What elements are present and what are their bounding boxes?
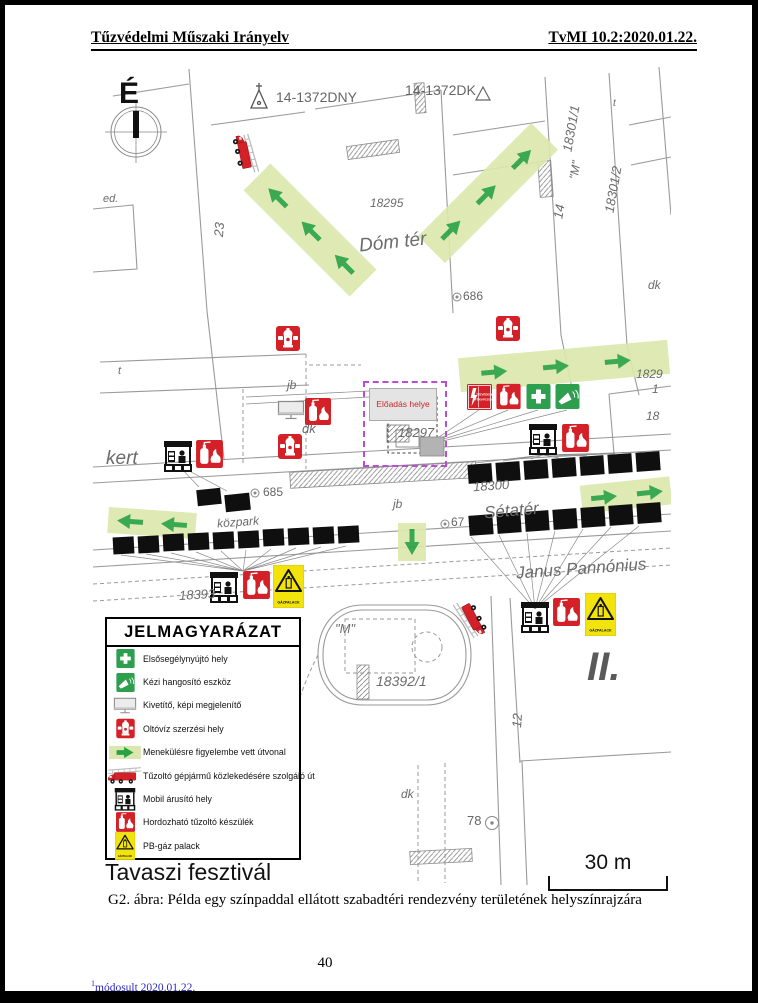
gas-cylinder-warning-sign [585, 593, 616, 636]
vendor-stand-icon [107, 787, 143, 811]
escape-route-icon [107, 745, 143, 760]
vendor-stand-icon [163, 440, 193, 472]
fire-extinguisher-sign [196, 439, 223, 469]
map-abbrev-label: jb [287, 379, 296, 391]
parcel-label: 18295 [370, 197, 403, 209]
escape-route-northeast [418, 123, 558, 263]
compass-north-label: É [119, 77, 139, 111]
projector-screen-icon [277, 400, 305, 420]
fire-extinguisher-sign [553, 597, 580, 627]
legend-item: Oltóvíz szerzési hely [107, 717, 299, 740]
parcel-label: 18297 [398, 426, 434, 439]
hydrant-icon [107, 718, 143, 739]
escape-route-bands [107, 123, 671, 561]
legend-item: Tűzoltó gépjármű közlekedésére szolgáló … [107, 764, 299, 787]
fire-extinguisher-sign [496, 383, 521, 410]
survey-point-label: 685 [263, 486, 283, 498]
fire-main-switch-sign [467, 383, 492, 410]
legend-item: Hordozható tűzoltó készülék [107, 811, 299, 834]
first-aid-sign [526, 383, 551, 410]
site-plan-map: TŰZVÉDELMI FŐKAPCSOLÓ GÁZPALACK [93, 63, 671, 887]
header-left: Tűzvédelmi Műszaki Irányelv [91, 29, 289, 47]
survey-point-label: 78 [467, 814, 481, 827]
vendor-stand-icon [520, 601, 550, 633]
legend-item: Menekülésre figyelembe vett útvonal [107, 741, 299, 764]
page-number: 40 [305, 955, 345, 972]
legend-item-label: Mobil árusító hely [143, 794, 212, 804]
triangle-symbol [476, 87, 490, 100]
legend-item-label: Tűzoltó gépjármű közlekedésére szolgáló … [143, 771, 315, 781]
escape-route-northwest [244, 164, 377, 297]
parcel-label: 1829 [636, 368, 663, 380]
legend-box: JELMAGYARÁZAT Elsősegélynyújtó hely Kézi… [105, 617, 301, 860]
scale-bar: 30 m [548, 851, 668, 891]
map-abbrev-label: dk [401, 788, 414, 800]
chapel-icon [251, 83, 267, 108]
survey-point-label: 67 [451, 516, 464, 528]
first-aid-icon [107, 648, 143, 669]
document-page: Tűzvédelmi Műszaki Irányelv TvMI 10.2:20… [0, 0, 758, 1003]
legend-item: Kivetítő, képi megjelenítő [107, 694, 299, 717]
map-abbrev-label: jb [393, 498, 402, 510]
parcel-label: 18392/1 [376, 674, 427, 688]
street-number-label: 23 [211, 214, 227, 245]
megaphone-icon [107, 672, 143, 693]
footnote-text: módosult 2020.01.22. [95, 982, 195, 994]
parcel-label: 18 [646, 410, 659, 422]
survey-point-label: 686 [463, 290, 483, 302]
area-name-label: Sétatér [483, 500, 539, 522]
escape-route-south [398, 523, 426, 561]
map-title: Tavaszi fesztivál [105, 859, 271, 886]
fire-extinguisher-sign [243, 570, 270, 600]
legend-item-label: Kézi hangosító eszköz [143, 677, 231, 687]
legend-item: PB-gáz palack [107, 834, 299, 857]
fire-truck-icon-north [232, 133, 259, 175]
map-abbrev-label: t [118, 366, 121, 377]
hydrant-sign [496, 315, 520, 342]
street-number-label: 12 [509, 705, 524, 736]
legend-item: Mobil árusító hely [107, 787, 299, 810]
district-label: II. [587, 647, 620, 687]
megaphone-sign [555, 383, 580, 410]
map-abbrev-label: dk [648, 279, 661, 291]
page-header: Tűzvédelmi Műszaki Irányelv TvMI 10.2:20… [91, 29, 697, 51]
legend-item: Kézi hangosító eszköz [107, 670, 299, 693]
map-abbrev-label: ed. [103, 194, 118, 205]
legend-item-label: Menekülésre figyelembe vett útvonal [143, 747, 286, 757]
fire-truck-icon [107, 766, 143, 786]
scale-bar-line [548, 876, 668, 891]
fire-truck-icon-south [453, 596, 488, 639]
legend-item-label: Kivetítő, képi megjelenítő [143, 700, 241, 710]
parcel-label: 14-1372DNY [276, 90, 357, 104]
hydrant-sign [276, 325, 300, 352]
legend-title: JELMAGYARÁZAT [107, 619, 299, 647]
area-name-label: kert [106, 449, 138, 468]
vendor-stand-icon [528, 423, 558, 455]
gas-cylinder-warning-sign [273, 565, 304, 608]
gas-warning-icon [107, 832, 143, 860]
figure-caption: G2. ábra: Példa egy színpaddal ellátott … [108, 892, 688, 909]
footnote: 1módosult 2020.01.22. [91, 979, 195, 994]
header-right: TvMI 10.2:2020.01.22. [548, 29, 697, 47]
legend-item-label: Hordozható tűzoltó készülék [143, 817, 254, 827]
stage-label: Előadás helye [376, 400, 429, 409]
map-abbrev-label: dk [302, 422, 316, 435]
projector-screen-icon [107, 697, 143, 714]
fire-extinguisher-sign [562, 423, 589, 453]
legend-item-label: Oltóvíz szerzési hely [143, 724, 224, 734]
fire-extinguisher-icon [107, 811, 143, 833]
map-abbrev-label: t [613, 99, 616, 109]
parcel-label: 18300 [473, 478, 510, 493]
parcel-label: 1 [652, 383, 659, 395]
legend-item-label: Elsősegélynyújtó hely [143, 654, 228, 664]
parcel-label: 18393 [179, 587, 216, 602]
hydrant-sign [278, 433, 302, 460]
area-name-label: közpark [217, 515, 260, 530]
monument-label: "M" [335, 622, 355, 635]
legend-item-label: PB-gáz palack [143, 841, 200, 851]
legend-item: Elsősegélynyújtó hely [107, 647, 299, 670]
parcel-label: 14-1372DK [405, 83, 476, 97]
stage-label-box: Előadás helye [369, 388, 437, 421]
scale-label: 30 m [548, 851, 668, 875]
